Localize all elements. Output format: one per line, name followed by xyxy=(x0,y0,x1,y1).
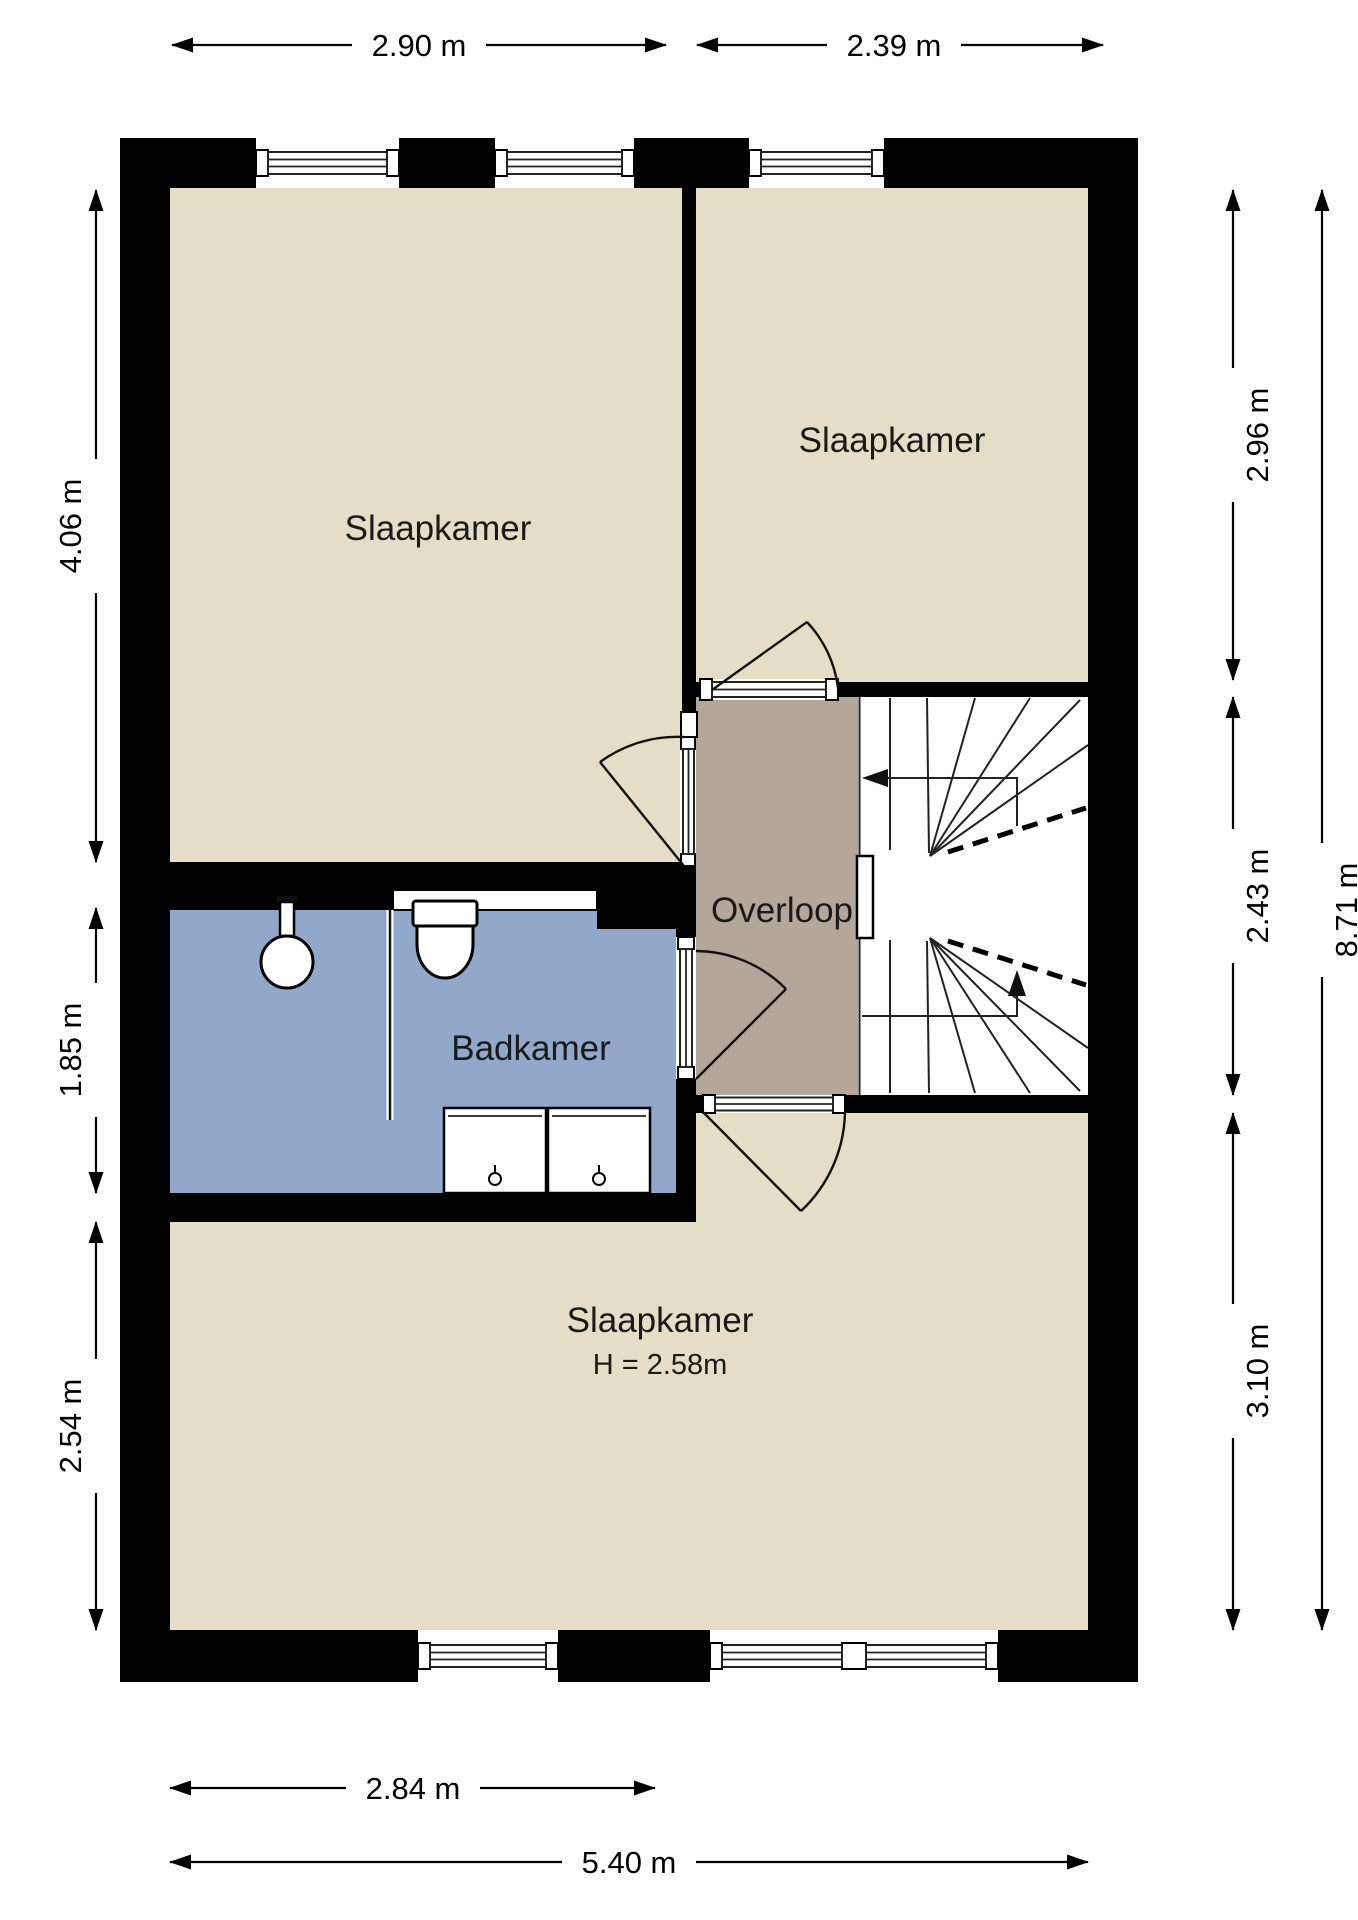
label-ceiling-height: H = 2.58m xyxy=(593,1349,728,1381)
wall-top-3 xyxy=(634,138,749,188)
svg-text:4.06 m: 4.06 m xyxy=(53,479,88,574)
stairwell-area xyxy=(858,697,1088,1095)
wall-badkamer-step xyxy=(597,910,676,929)
window-icon xyxy=(495,138,634,188)
dimension-left-1: 4.06 m xyxy=(53,190,114,862)
dimension-right-overall: 8.71 m xyxy=(1304,190,1358,1630)
floorplan-canvas: Slaapkamer Slaapkamer Overloop Badkamer … xyxy=(0,0,1358,1920)
label-overloop: Overloop xyxy=(711,891,853,930)
dimension-bottom-2: 5.40 m xyxy=(170,1843,1088,1881)
stairs-spine xyxy=(857,856,873,938)
dimension-top-1: 2.90 m xyxy=(172,26,666,64)
wall-divider-top-rooms xyxy=(682,188,696,713)
svg-text:2.43 m: 2.43 m xyxy=(1240,849,1275,944)
svg-text:2.84 m: 2.84 m xyxy=(366,1771,461,1806)
label-slaapkamer-top-left: Slaapkamer xyxy=(345,509,532,548)
label-slaapkamer-bottom: Slaapkamer xyxy=(567,1301,754,1340)
wall-bottom-3 xyxy=(998,1630,1138,1682)
window-icon xyxy=(418,1630,558,1682)
wall-top-2 xyxy=(399,138,495,188)
dimension-bottom-1: 2.84 m xyxy=(170,1769,655,1807)
dimension-left-3: 2.54 m xyxy=(53,1222,114,1630)
wall-bottom-2 xyxy=(558,1630,710,1682)
svg-text:2.96 m: 2.96 m xyxy=(1240,388,1275,483)
svg-text:2.54 m: 2.54 m xyxy=(53,1379,88,1474)
wall-right xyxy=(1088,138,1138,1682)
dimension-left-2: 1.85 m xyxy=(53,908,114,1193)
svg-text:8.71 m: 8.71 m xyxy=(1329,863,1358,958)
dimension-right-2: 2.43 m xyxy=(1215,697,1275,1095)
label-slaapkamer-top-right: Slaapkamer xyxy=(799,421,986,460)
svg-text:5.40 m: 5.40 m xyxy=(582,1845,677,1880)
label-badkamer: Badkamer xyxy=(451,1029,611,1068)
wall-below-badkamer xyxy=(120,1193,696,1222)
dimension-right-3: 3.10 m xyxy=(1215,1113,1275,1630)
washing-machine-icon xyxy=(548,1108,650,1193)
svg-text:1.85 m: 1.85 m xyxy=(53,1003,88,1098)
wall-badkamer-right-upper xyxy=(676,910,696,937)
dimension-top-2: 2.39 m xyxy=(697,26,1103,64)
wall-bottom-1 xyxy=(120,1630,418,1682)
svg-text:2.90 m: 2.90 m xyxy=(372,28,467,63)
floorplan-page: Slaapkamer Slaapkamer Overloop Badkamer … xyxy=(0,0,1358,1920)
dimension-right-1: 2.96 m xyxy=(1215,190,1275,680)
wall-junction xyxy=(676,1095,696,1222)
window-icon xyxy=(710,1630,998,1682)
window-icon xyxy=(749,138,884,188)
wall-below-overloop-sliver xyxy=(696,1095,703,1113)
wall-below-stairs xyxy=(845,1095,1088,1113)
svg-text:3.10 m: 3.10 m xyxy=(1240,1324,1275,1419)
svg-text:2.39 m: 2.39 m xyxy=(847,28,942,63)
washing-machine-icon xyxy=(444,1108,546,1193)
toilet-icon xyxy=(413,901,477,978)
wall-under-top-right-room xyxy=(838,682,1088,697)
window-icon xyxy=(256,138,399,188)
